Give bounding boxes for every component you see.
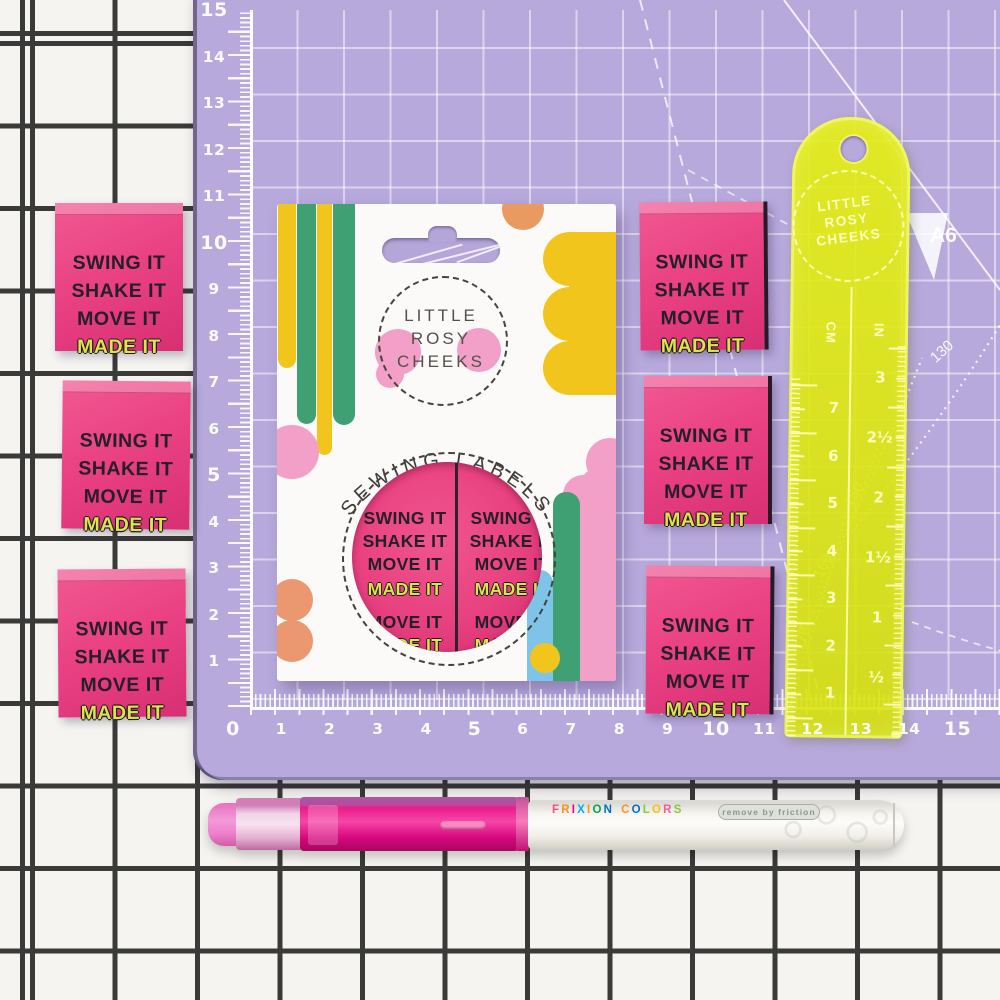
sewing-label: SWING ITSHAKE ITMOVE ITMADE IT [644, 376, 772, 524]
pen-tagline-pill: remove by friction [718, 804, 820, 820]
ruler-half-cm-tick [787, 693, 801, 695]
sewing-label-line: SHAKE IT [58, 643, 186, 672]
ruler-in-number: 1½ [865, 548, 891, 566]
pen-cap [300, 797, 522, 851]
sewing-label-line: SWING IT [55, 249, 183, 277]
ruler-cm-tick [791, 384, 817, 387]
pen-brand-letter: S [674, 804, 684, 816]
pen-barrel-seam [893, 803, 895, 847]
mat-scale-number: 9 [208, 280, 219, 298]
ruler-inch-tick [896, 377, 905, 379]
sewing-label-line: MADE IT [640, 331, 764, 360]
sewing-label: SWING ITSHAKE ITMOVE ITMADE IT [639, 201, 768, 350]
sewing-label-line: MADE IT [58, 699, 186, 728]
ruler-cm-number: 5 [827, 494, 838, 512]
pen-brand-letter: O [652, 804, 663, 816]
window-label-line: MADE IT [475, 579, 542, 600]
mat-scale-number: 11 [203, 187, 226, 205]
ruler-in-unit-label: IN [871, 323, 886, 338]
label-window: SWING ITSHAKE ITMOVE ITMADE ITMOVE ITMAD… [352, 462, 542, 652]
window-label-line: MOVE IT [475, 554, 542, 575]
sewing-label-line: MOVE IT [646, 668, 770, 697]
mat-scale-number: 10 [702, 718, 729, 740]
sewing-label-line: MOVE IT [55, 305, 183, 333]
sewing-label-line: SHAKE IT [644, 450, 768, 478]
mat-scale-number: 7 [565, 720, 576, 738]
window-label-line: SWING IT [364, 508, 447, 529]
pen-tagline: remove by friction [722, 807, 816, 817]
mat-scale-number: 15 [200, 0, 227, 21]
mat-scale-number: 10 [200, 232, 227, 254]
pen-cap-detail [308, 805, 338, 845]
sewing-label-line: SWING IT [62, 426, 190, 455]
label-divider [455, 462, 458, 652]
ruler-inch-tick [889, 348, 906, 350]
pen-brand-letter: R [561, 804, 572, 816]
ruler-inch-tick [885, 644, 902, 646]
ruler-half-cm-tick [790, 455, 804, 457]
brand-line: LITTLE [371, 304, 511, 327]
window-label-line: SWING IT [471, 508, 542, 529]
mat-scale-number: 7 [208, 373, 219, 391]
mat-scale-number: 1 [276, 720, 287, 738]
decor-circle-orange [502, 204, 544, 230]
pen-brand-letter: X [577, 804, 587, 816]
ruler-in-number: ½ [868, 668, 884, 686]
ruler-cm-tick [790, 479, 816, 482]
ruler-inch-tick [887, 466, 904, 468]
ruler-cm-number: 7 [829, 399, 840, 417]
ruler-in-number: 3 [875, 368, 886, 386]
mat-scale-number: 14 [203, 48, 226, 66]
ruler-half-cm-tick [790, 503, 804, 505]
mat-scale-number: 6 [517, 720, 528, 738]
sewing-label-line: SWING IT [644, 422, 768, 450]
pen-brand-letter: R [663, 804, 674, 816]
mat-scale-number: 3 [208, 559, 219, 577]
ruler-cm-tick [787, 669, 813, 672]
pen-brand-letter: C [621, 804, 632, 816]
mat-vertical-ticks-major [228, 10, 250, 707]
decor-lobe-orange [277, 579, 313, 621]
window-label-line: MADE IT [368, 579, 443, 600]
sewing-label-line: SHAKE IT [55, 277, 183, 305]
sewing-label-line: SHAKE IT [646, 640, 770, 669]
mat-scale-number: 5 [468, 718, 482, 740]
brand-line: ROSY [371, 327, 511, 350]
mat-vertical-scale-line [250, 10, 253, 707]
ruler-cm-tick [788, 622, 814, 625]
sewing-label-line: MADE IT [55, 333, 183, 361]
window-label-line: MADE IT [475, 635, 542, 652]
ruler-half-cm-tick [788, 645, 802, 647]
brand-logo-text: LITTLE ROSY CHEEKS [371, 304, 511, 373]
ruler-half-cm-tick [791, 408, 805, 410]
mat-scale-number: 11 [753, 720, 776, 738]
decor-stripe-yellow [278, 204, 296, 368]
product-photo-scene: A6 130 150 160 170 SWING ITSHAKE ITMOVE … [0, 0, 1000, 1000]
ruler-center-line [844, 287, 852, 735]
ruler-cm-number: 3 [826, 589, 837, 607]
ruler-cm-tick [789, 527, 815, 530]
window-label-line: MOVE IT [368, 554, 443, 575]
ruler-cm-unit-label: CM [823, 322, 838, 344]
decor-stripe-green [333, 204, 355, 425]
mat-scale-number: 15 [944, 718, 971, 740]
mat-scale-number: 0 [226, 718, 240, 740]
window-label-line: SHAKE IT [470, 531, 542, 552]
ruler-cm-tick [787, 717, 813, 720]
ruler-inch-tick [894, 555, 903, 557]
mat-scale-number: 3 [372, 720, 383, 738]
mat-scale-number: 5 [207, 464, 221, 486]
mat-scale-number: 1 [208, 652, 219, 670]
sewing-label-line: SWING IT [640, 247, 764, 276]
sewing-label-line: MOVE IT [61, 482, 189, 511]
ruler-inch-tick [886, 525, 903, 527]
window-label-line: MOVE IT [368, 612, 443, 633]
mat-scale-number: 13 [203, 94, 226, 112]
decor-cloud-yellow [569, 232, 616, 395]
ruler-cm-number: 2 [825, 636, 836, 654]
ruler-in-number: 2½ [866, 428, 892, 446]
decor-lobe-orange [277, 620, 313, 662]
pen-brand-letter: O [592, 804, 603, 816]
pen-brand-letter: N [604, 804, 615, 816]
sewing-label-line: SWING IT [646, 612, 770, 641]
decor-bar-pink [580, 468, 616, 681]
mat-scale-number: 14 [898, 720, 921, 738]
sewing-label-line: MOVE IT [640, 303, 764, 332]
pen-cap-clip-slot [440, 821, 486, 830]
mat-scale-number: 4 [421, 720, 432, 738]
decor-stripe-yellow [317, 204, 332, 455]
window-label-line: SHAKE IT [363, 531, 448, 552]
mat-scale-number: 2 [208, 606, 219, 624]
sewing-label-line: MADE IT [61, 510, 189, 539]
ruler-cm-number: 4 [827, 541, 838, 559]
ruler-inch-tick [896, 437, 905, 439]
sewing-label-line: MOVE IT [644, 478, 768, 506]
ruler-in-number: 1 [872, 608, 883, 626]
pen-brand-letter: F [552, 804, 561, 816]
mat-scale-number: 12 [801, 720, 824, 738]
product-packaging-card: LITTLE ROSY CHEEKS SEWING LABELS SWING I… [277, 204, 616, 681]
sewing-label-line: MADE IT [644, 506, 768, 534]
ruler-inch-tick [885, 585, 902, 587]
pen-brand-letter: L [643, 804, 652, 816]
mat-scale-number: 9 [662, 720, 673, 738]
sewing-label-line: SWING IT [58, 615, 186, 644]
sewing-label: SWING ITSHAKE ITMOVE ITMADE IT [57, 569, 186, 718]
window-label-line: MADE IT [368, 635, 443, 652]
ruler-inch-tick [895, 496, 904, 498]
ruler-in-number: 2 [873, 488, 884, 506]
mat-scale-number: 12 [203, 141, 226, 159]
hang-slot-bump [428, 226, 457, 242]
ruler-half-cm-tick [789, 550, 803, 552]
decor-circle-pink [277, 425, 319, 479]
mat-scale-number: 6 [208, 420, 219, 438]
frixion-pen: FRIXION COLORS remove by friction [205, 795, 905, 857]
ruler-inch-tick [892, 674, 901, 676]
sewing-label-line: SHAKE IT [640, 275, 764, 304]
ruler-cm-tick [789, 574, 815, 577]
sewing-label: SWING ITSHAKE ITMOVE ITMADE IT [645, 566, 774, 715]
window-label-line: MOVE IT [475, 612, 542, 633]
ruler-cm-number: 6 [828, 446, 839, 464]
mat-scale-number: 8 [614, 720, 625, 738]
ruler-half-cm-tick [788, 598, 802, 600]
ruler-inch-tick [884, 703, 901, 705]
ruler-cm-tick [791, 432, 817, 435]
ruler-hole [840, 136, 866, 162]
ruler-inch-tick [888, 407, 905, 409]
sewing-label: SWING ITSHAKE ITMOVE ITMADE IT [61, 380, 191, 529]
ruler-cm-number: 1 [825, 684, 836, 702]
acrylic-ruler: LITTLE ROSY CHEEKS CM IN 765432132½21½1½ [784, 116, 911, 739]
sewing-label: SWING ITSHAKE ITMOVE ITMADE IT [55, 203, 183, 351]
mat-scale-number: 4 [208, 513, 219, 531]
brand-line: CHEEKS [371, 350, 511, 373]
sewing-label-line: SHAKE IT [62, 454, 190, 483]
pen-brand-text: FRIXION COLORS [552, 804, 684, 816]
sewing-label-line: MOVE IT [58, 671, 186, 700]
pen-brand-letter: O [632, 804, 643, 816]
mat-scale-number: 2 [324, 720, 335, 738]
mat-scale-number: 13 [850, 720, 873, 738]
ruler-inch-tick [893, 614, 902, 616]
decor-stripe-green [297, 204, 316, 424]
pen-cap-clear-section [236, 798, 304, 850]
mat-scale-number: 8 [208, 327, 219, 345]
